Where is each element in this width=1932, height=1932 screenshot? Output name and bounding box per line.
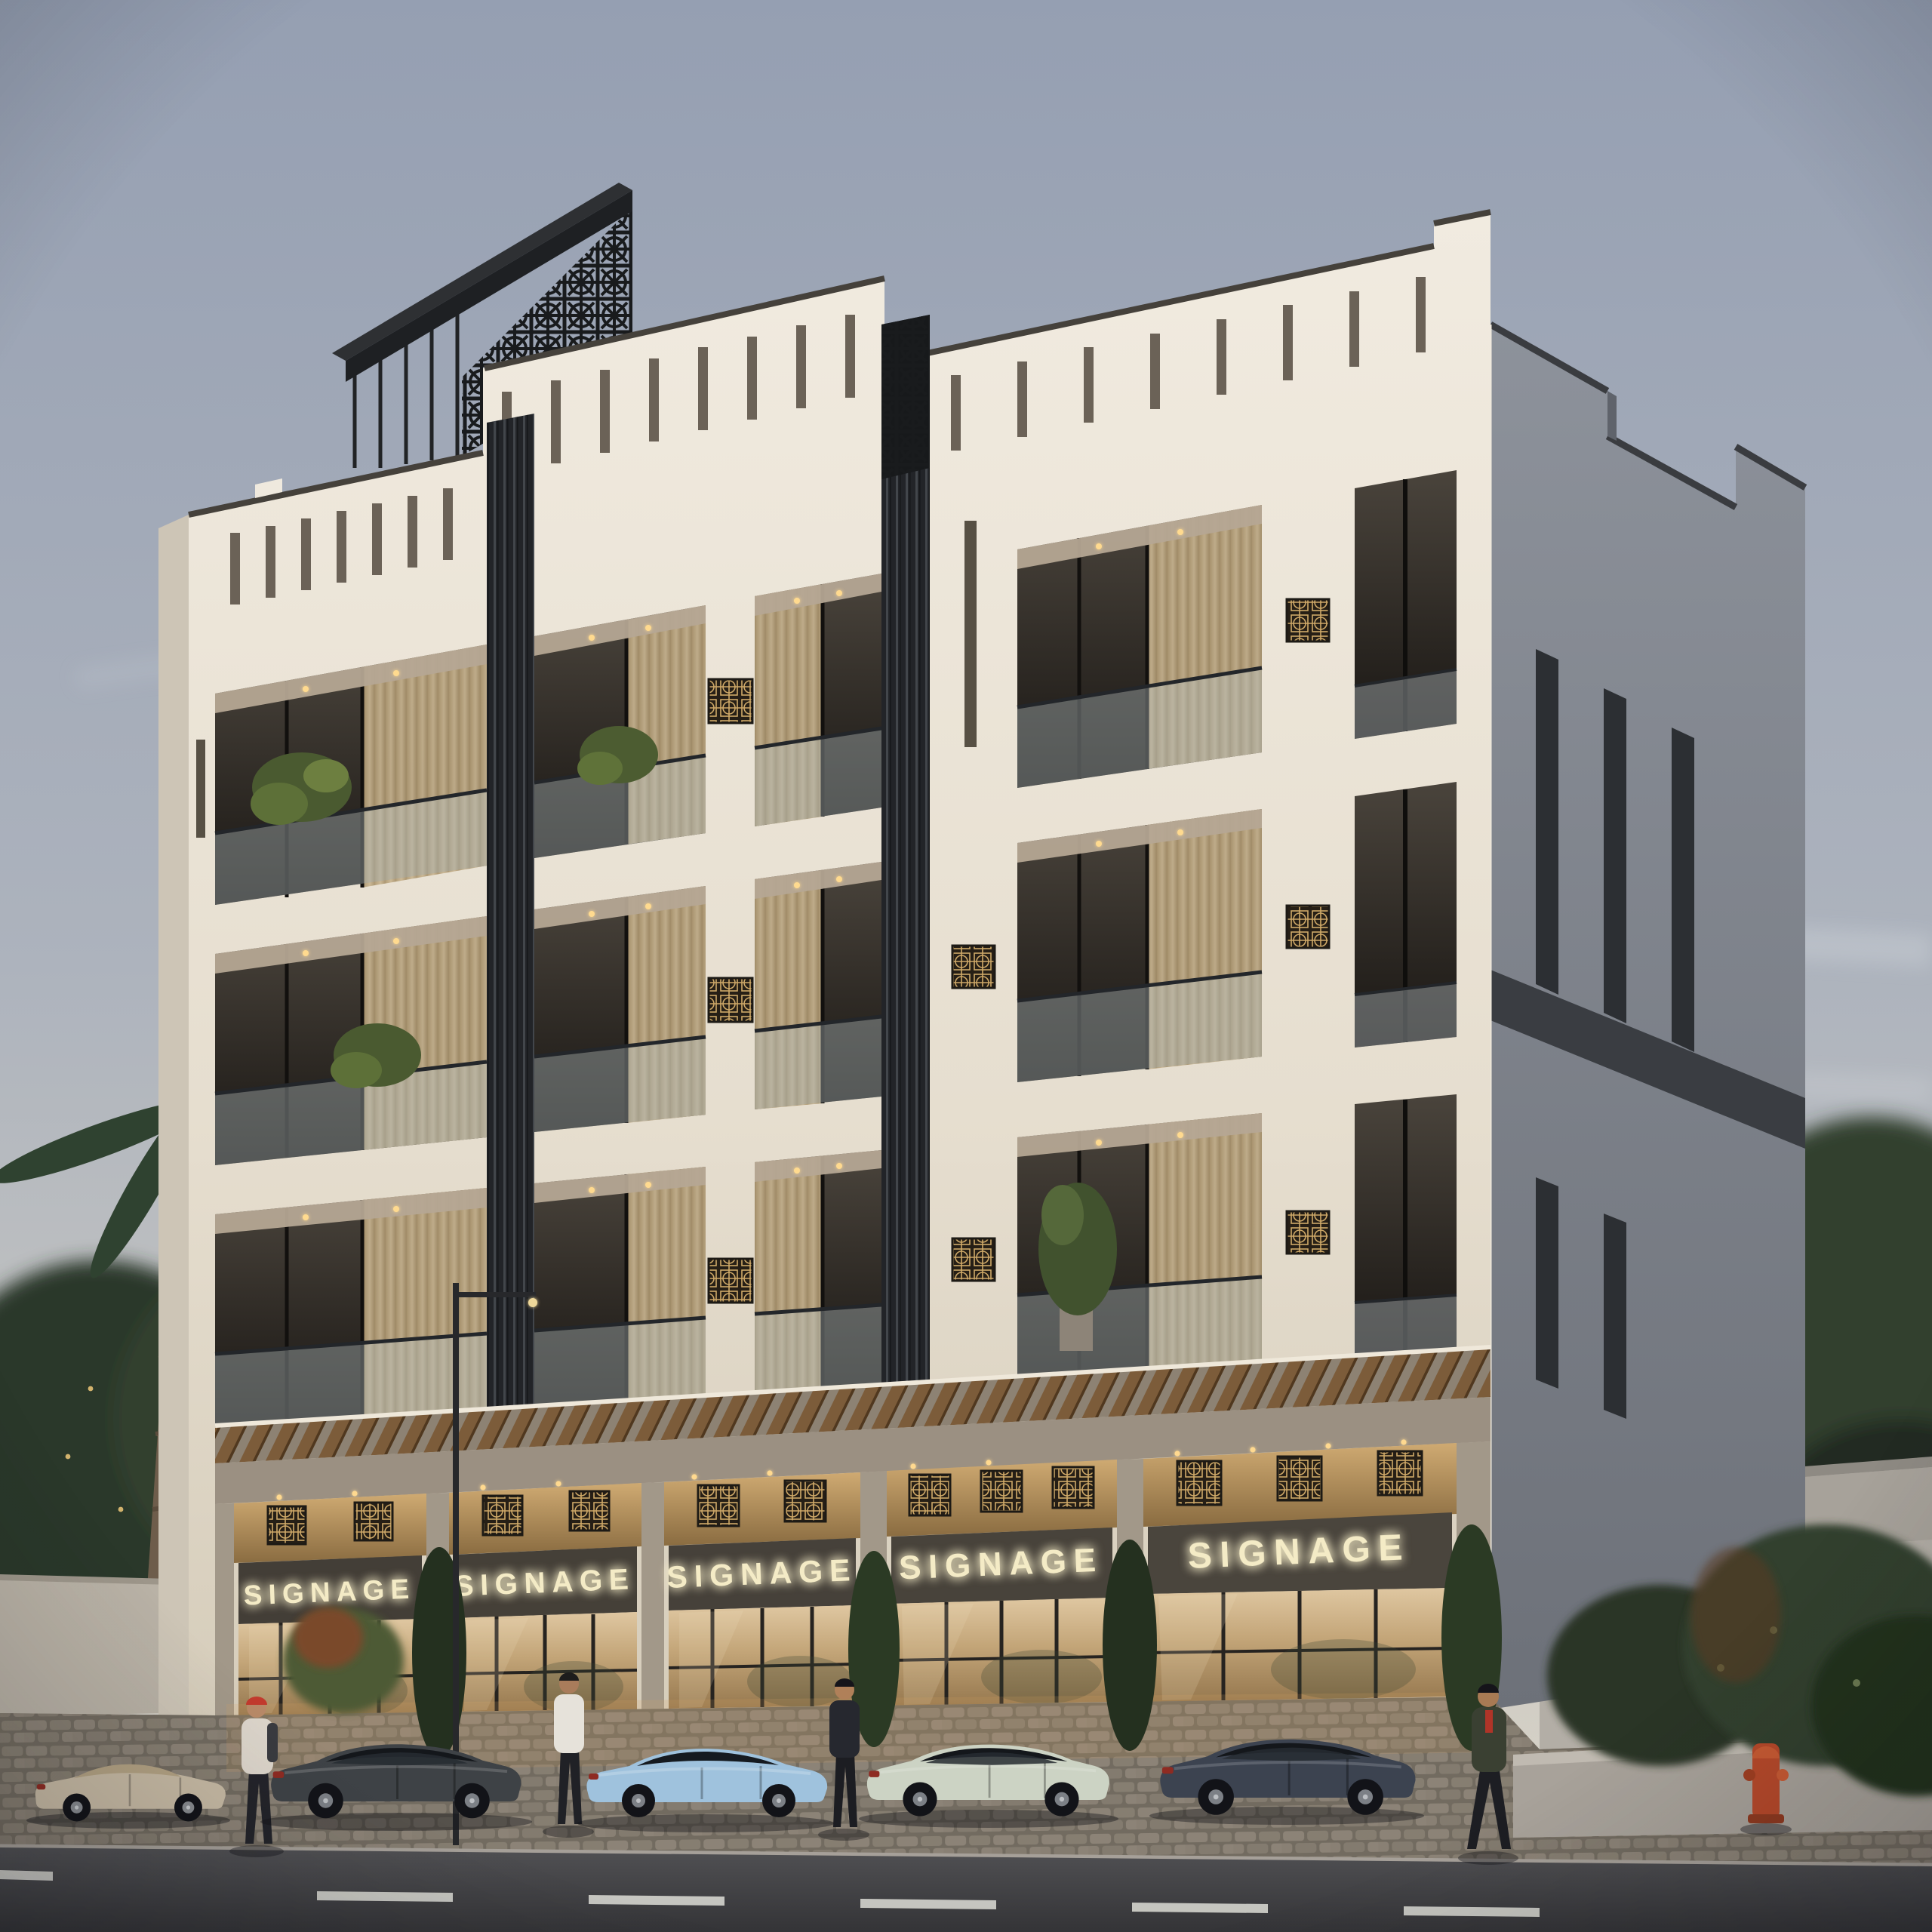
scene-canvas: SIGNAGE SIGNAGE SIGNAGE SIGNAGE SIGNAGE [0, 0, 1932, 1932]
architectural-render: SIGNAGE SIGNAGE SIGNAGE SIGNAGE SIGNAGE [0, 0, 1932, 1932]
vignette [0, 0, 1932, 1932]
